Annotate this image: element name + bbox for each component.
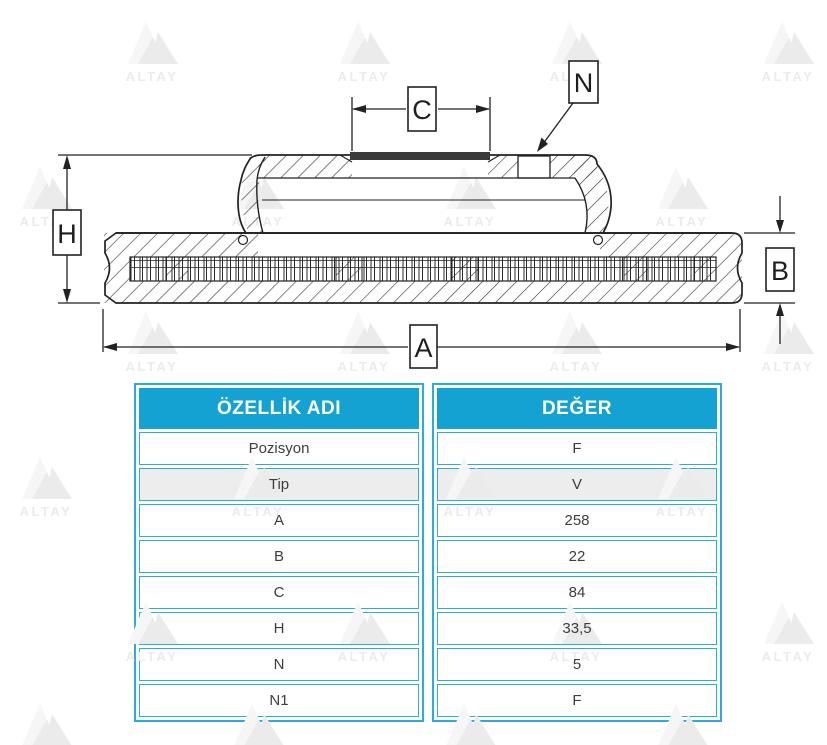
dimension-A: A bbox=[103, 309, 740, 368]
value-cell: 258 bbox=[437, 504, 717, 537]
page: ALTAYALTAYALTAYALTAYALTAYALTAYALTAYALTAY… bbox=[0, 0, 827, 745]
dim-label-H: H bbox=[57, 219, 77, 249]
property-label: Tip bbox=[269, 476, 289, 493]
table-row: F bbox=[437, 684, 717, 717]
dim-label-A: A bbox=[414, 333, 432, 363]
table-row: 84 bbox=[437, 576, 717, 609]
value-label: V bbox=[572, 476, 582, 493]
value-table: DEĞER FV258228433,55F bbox=[432, 383, 722, 722]
value-label: 258 bbox=[564, 512, 589, 529]
brake-disc-diagram: H C N B bbox=[0, 0, 827, 378]
altay-logo-icon: ALTAY bbox=[14, 453, 78, 523]
dimension-N: N bbox=[537, 61, 598, 152]
property-label: N1 bbox=[269, 692, 288, 709]
dimension-C: C bbox=[352, 87, 490, 151]
property-table: ÖZELLİK ADI PozisyonTipABCHNN1 bbox=[134, 383, 424, 722]
table-row: C bbox=[139, 576, 419, 609]
table-row: 33,5 bbox=[437, 612, 717, 645]
property-cell: Pozisyon bbox=[139, 432, 419, 465]
value-cell: F bbox=[437, 432, 717, 465]
value-cell: 84 bbox=[437, 576, 717, 609]
dimension-B: B bbox=[744, 196, 795, 344]
spec-table-area: ÖZELLİK ADI PozisyonTipABCHNN1 DEĞER FV2… bbox=[134, 383, 722, 722]
dim-label-C: C bbox=[412, 95, 432, 125]
column-header-deger: DEĞER bbox=[437, 388, 717, 429]
property-label: H bbox=[274, 620, 285, 637]
table-row: Pozisyon bbox=[139, 432, 419, 465]
altay-logo-icon: ALTAY bbox=[14, 700, 78, 745]
property-cell: H bbox=[139, 612, 419, 645]
property-label: A bbox=[274, 512, 284, 529]
value-label: 84 bbox=[569, 584, 586, 601]
table-row: V bbox=[437, 468, 717, 501]
center-bore-band bbox=[350, 152, 490, 160]
property-cell: Tip bbox=[139, 468, 419, 501]
value-label: 33,5 bbox=[562, 620, 591, 637]
table-row: 22 bbox=[437, 540, 717, 573]
property-cell: C bbox=[139, 576, 419, 609]
altay-watermark: ALTAY bbox=[14, 453, 78, 523]
dim-label-N: N bbox=[574, 68, 594, 98]
property-label: B bbox=[274, 548, 284, 565]
value-label: F bbox=[572, 440, 581, 457]
column-header-ozellik-adi: ÖZELLİK ADI bbox=[139, 388, 419, 429]
dim-label-B: B bbox=[771, 256, 789, 286]
table-row: N1 bbox=[139, 684, 419, 717]
value-label: F bbox=[572, 692, 581, 709]
table-row: 5 bbox=[437, 648, 717, 681]
property-label: C bbox=[274, 584, 285, 601]
altay-watermark: ALTAY bbox=[14, 700, 78, 745]
property-label: Pozisyon bbox=[249, 440, 310, 457]
value-cell: 33,5 bbox=[437, 612, 717, 645]
table-row: H bbox=[139, 612, 419, 645]
value-cell: 22 bbox=[437, 540, 717, 573]
table-row: A bbox=[139, 504, 419, 537]
table-row: N bbox=[139, 648, 419, 681]
watermark-text: ALTAY bbox=[20, 504, 73, 519]
table-row: B bbox=[139, 540, 419, 573]
property-cell: N bbox=[139, 648, 419, 681]
value-cell: F bbox=[437, 684, 717, 717]
property-label: N bbox=[274, 656, 285, 673]
table-row: 258 bbox=[437, 504, 717, 537]
value-label: 22 bbox=[569, 548, 586, 565]
property-cell: B bbox=[139, 540, 419, 573]
value-cell: 5 bbox=[437, 648, 717, 681]
property-cell: N1 bbox=[139, 684, 419, 717]
watermark-text: ALTAY bbox=[762, 649, 815, 664]
altay-logo-icon: ALTAY bbox=[756, 598, 820, 668]
hat-section bbox=[238, 152, 611, 245]
value-cell: V bbox=[437, 468, 717, 501]
value-label: 5 bbox=[573, 656, 581, 673]
friction-ring bbox=[104, 233, 742, 303]
property-cell: A bbox=[139, 504, 419, 537]
altay-watermark: ALTAY bbox=[756, 598, 820, 668]
table-row: Tip bbox=[139, 468, 419, 501]
bolt-hole bbox=[518, 156, 550, 178]
table-row: F bbox=[437, 432, 717, 465]
